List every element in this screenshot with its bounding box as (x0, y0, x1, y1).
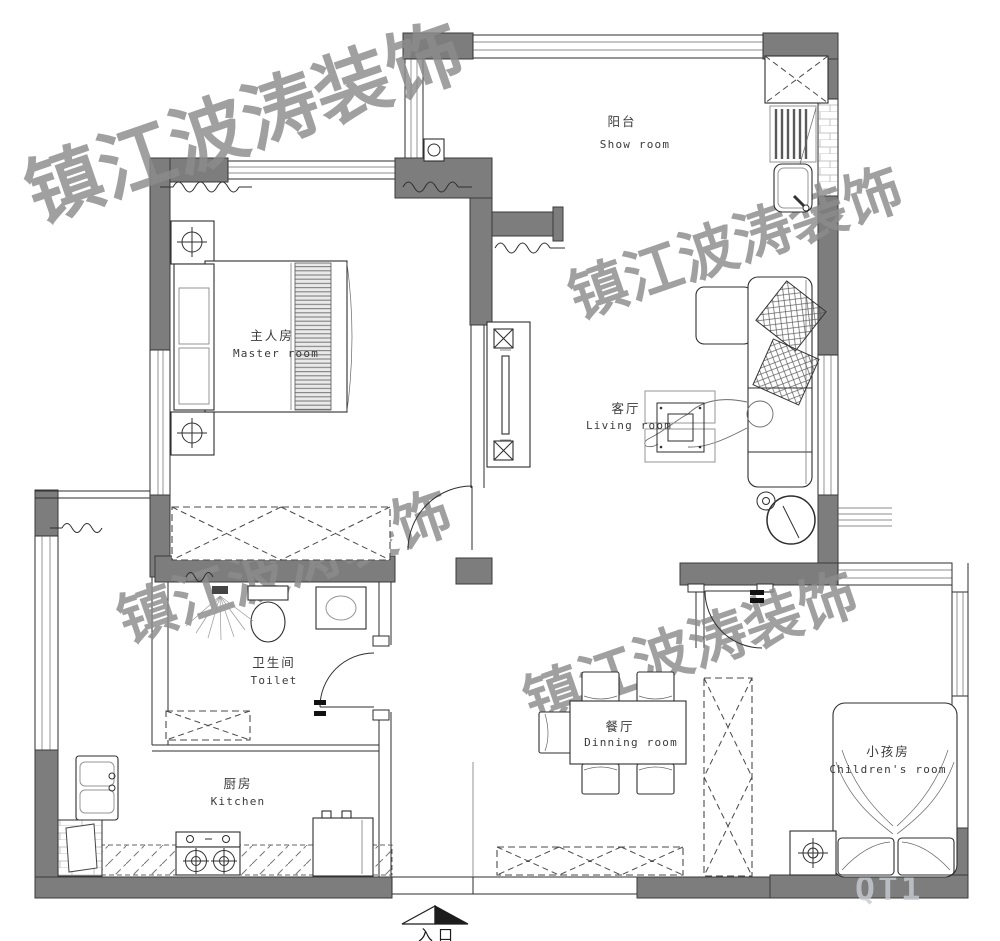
nightstand (171, 221, 214, 264)
room-label-en: Living room (586, 419, 672, 432)
room-label-en: Toilet (251, 674, 298, 687)
entrance-label: 入口 (418, 926, 458, 941)
wardrobe (172, 507, 390, 560)
room-label-zh: 厨房 (223, 776, 252, 791)
nightstand (790, 831, 836, 875)
kitchen-sink (76, 756, 118, 820)
room-label-en: Dinning room (584, 736, 678, 749)
room-label-en: Master room (233, 347, 319, 360)
tv-unit (487, 322, 530, 467)
tall-cabinet (704, 678, 752, 876)
room-label-en: Kitchen (211, 795, 266, 808)
room-label-zh: 阳台 (607, 114, 636, 129)
children-bed (833, 703, 957, 877)
room-label-zh: 主人房 (250, 328, 294, 343)
window (818, 355, 838, 495)
storage-cabinet (765, 56, 828, 103)
room-label-en: Show room (600, 138, 670, 151)
room-label-zh: 餐厅 (605, 719, 634, 734)
stove (176, 832, 240, 875)
dining-chair (539, 712, 572, 753)
room-living: 客厅 Living room (586, 277, 892, 544)
floor-lamp (757, 492, 815, 544)
window (35, 536, 58, 750)
ac-vent-lines (838, 508, 892, 526)
window (838, 563, 952, 585)
corner-box (424, 139, 444, 161)
dining-chair (582, 672, 619, 702)
room-label-en: Children's room (829, 763, 946, 776)
washing-machine (166, 711, 250, 740)
room-kitchen: 厨房 Kitchen (58, 756, 392, 876)
room-label-zh: 卫生间 (252, 655, 296, 670)
fridge (313, 811, 373, 876)
tv-icon (502, 356, 509, 434)
entrance: 入口 (402, 906, 468, 941)
dining-chair (582, 764, 619, 794)
dining-chair (637, 672, 674, 702)
entry-direction-arrow (402, 906, 468, 924)
brick-column (58, 820, 102, 876)
nightstand (171, 412, 214, 455)
shoe-cabinet (497, 847, 683, 875)
toilet-door (314, 636, 389, 720)
window (150, 350, 170, 495)
floor-plan: 镇江波涛装饰 镇江波涛装饰 镇江波涛装饰 镇江波涛装饰 QT1 (0, 0, 1000, 941)
window (952, 592, 968, 696)
dining-chair (637, 764, 674, 794)
window (473, 35, 763, 58)
room-label-zh: 客厅 (611, 401, 640, 416)
room-label-zh: 小孩房 (866, 744, 910, 759)
pillow (898, 838, 954, 875)
vanity-sink (316, 587, 366, 629)
toilet-bowl (248, 586, 288, 642)
sofa (696, 277, 826, 487)
pillow (838, 838, 894, 875)
laundry-sink (774, 164, 812, 212)
